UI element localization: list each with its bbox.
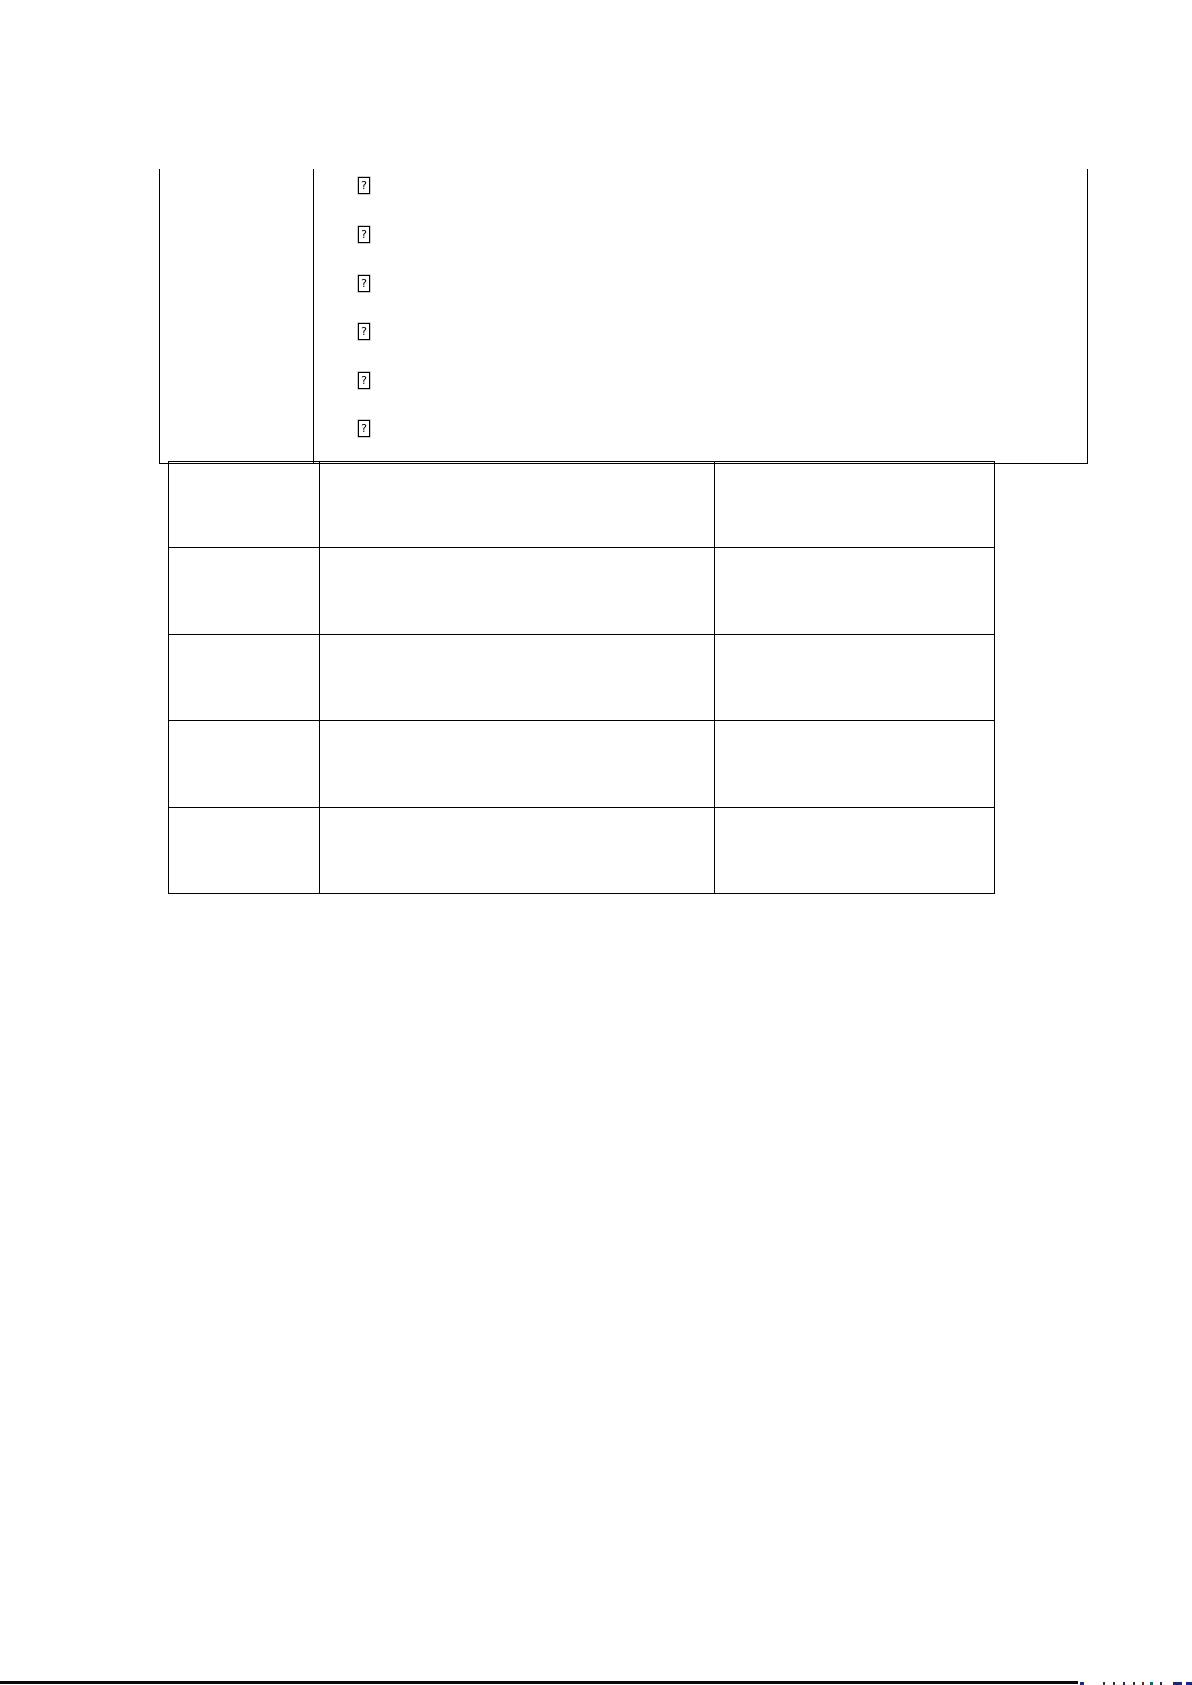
table-row [169,721,995,807]
table-row [169,634,995,720]
table-cell [320,634,715,720]
table-cell [715,548,995,634]
top-table-left-cell [160,169,312,463]
table-cell [715,721,995,807]
table-cell [320,807,715,893]
empty-table [168,461,995,894]
missing-glyph-icon: ? [358,372,370,389]
document-page: ? ? ? ? ? ? [0,0,1192,1685]
table-cell [320,462,715,548]
table-cell [169,462,320,548]
table-row [169,462,995,548]
table-row [169,548,995,634]
table-row [169,807,995,893]
top-partial-table: ? ? ? ? ? ? [159,169,1088,464]
table-cell [169,807,320,893]
table-cell [169,721,320,807]
missing-glyph-icon: ? [358,323,370,340]
missing-glyph-icon: ? [358,226,370,243]
table-cell [715,462,995,548]
column-divider [313,169,315,463]
missing-glyph-icon: ? [358,177,370,194]
table-cell [715,807,995,893]
table-cell [320,721,715,807]
table-cell [169,548,320,634]
missing-glyph-icon: ? [358,420,370,437]
table-cell [715,634,995,720]
table-cell [320,548,715,634]
missing-glyph-icon: ? [358,275,370,292]
table-cell [169,634,320,720]
